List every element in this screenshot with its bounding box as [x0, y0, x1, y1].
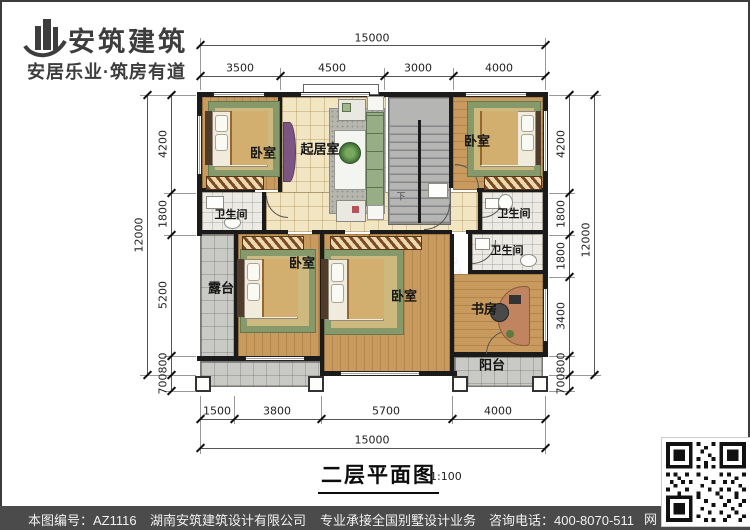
room-label-bedroom-bl: 卧室 [289, 253, 315, 272]
dimension-line [594, 95, 595, 375]
extension-line [280, 68, 281, 90]
sofa [366, 112, 384, 206]
dim-bottom-seg: 4000 [484, 405, 512, 418]
wardrobe [330, 236, 422, 250]
dimension-line [200, 419, 545, 420]
dim-left-seg: 800 [157, 353, 170, 374]
dim-top-seg: 4000 [485, 62, 513, 75]
dim-right-seg: 800 [555, 353, 568, 374]
side-table [367, 96, 384, 111]
dim-bottom-seg: 1500 [203, 405, 231, 418]
footer-phone: 咨询电话：400-8070-511 [489, 510, 634, 529]
side-table [367, 205, 384, 220]
room-label-bedroom-bc: 卧室 [391, 286, 417, 305]
extension-line [384, 68, 385, 90]
bed-headboard [205, 111, 212, 165]
dim-right-seg: 700 [555, 374, 568, 395]
dim-right-seg: 4200 [555, 130, 568, 158]
room-label-living: 起居室 [300, 139, 339, 158]
stairs-down-label: 下 [396, 190, 405, 203]
sofa-cushion [352, 206, 359, 213]
footer-company: 湖南安筑建筑设计有限公司 [150, 510, 306, 529]
room-label-bedroom-tr: 卧室 [464, 131, 490, 150]
extension-line [549, 277, 575, 278]
dim-left-seg: 700 [157, 374, 170, 395]
qr-code-pattern [666, 442, 746, 522]
drawing-title: 二层平面图 [318, 459, 439, 494]
stair-steps-left [390, 122, 418, 223]
footer-service: 专业承接全国别墅设计业务 [320, 510, 476, 529]
dimension-line [200, 45, 545, 46]
stair-rail [418, 120, 421, 223]
post [452, 376, 468, 392]
wall [449, 97, 453, 188]
window [213, 92, 265, 97]
window [197, 115, 202, 175]
post [195, 376, 211, 392]
window [543, 110, 548, 172]
post [308, 376, 324, 392]
dim-top-total: 15000 [355, 32, 390, 45]
pillow [521, 134, 534, 151]
dim-bottom-total: 15000 [355, 434, 390, 447]
wardrobe [206, 176, 264, 190]
pillow [331, 284, 344, 303]
dim-right-seg: 3400 [555, 302, 568, 330]
dimension-line [200, 448, 545, 449]
wall [312, 230, 345, 234]
console-table [283, 122, 296, 182]
wall [370, 230, 452, 234]
footer-web-char: 网 [644, 509, 657, 528]
company-logo-icon [22, 14, 68, 60]
sink [475, 238, 490, 250]
pillow [215, 134, 228, 151]
washbasin [428, 183, 448, 198]
window [543, 288, 548, 342]
dimension-line [200, 76, 545, 77]
company-tagline: 安居乐业·筑房有道 [27, 58, 186, 84]
armchair [336, 200, 366, 222]
dim-bottom-seg: 3800 [263, 405, 291, 418]
room-label-terrace: 露台 [208, 278, 234, 297]
wall [197, 230, 288, 234]
window [245, 356, 305, 361]
pillow [215, 115, 228, 132]
room-label-bedroom-tl: 卧室 [250, 143, 276, 162]
wall [472, 270, 548, 274]
window [465, 92, 527, 97]
extension-line [549, 193, 575, 194]
floor-terrace-strip [200, 361, 322, 387]
pillow [247, 263, 260, 281]
window [300, 92, 370, 97]
dim-left-seg: 4200 [157, 130, 170, 158]
drawing-scale: 1:100 [430, 470, 462, 483]
dim-right-total: 12000 [580, 223, 593, 258]
dimension-line [569, 95, 570, 391]
qr-code [662, 438, 750, 526]
bed-headboard [321, 259, 328, 319]
extension-line [549, 235, 575, 236]
company-name: 安筑建筑 [68, 20, 188, 59]
dim-right-seg: 1800 [555, 242, 568, 270]
window [340, 371, 420, 376]
drawing-number: 本图编号：AZ1116 [28, 510, 137, 529]
post [532, 376, 548, 392]
room-label-study: 书房 [471, 299, 497, 318]
plant [339, 142, 361, 164]
room-label-balcony: 阳台 [479, 355, 505, 374]
wardrobe [484, 176, 542, 190]
room-label-bath-r2: 卫生间 [491, 242, 524, 258]
dim-top-seg: 3000 [404, 62, 432, 75]
plant [506, 330, 514, 338]
pillow [331, 263, 344, 282]
wall [466, 230, 548, 234]
pillow [521, 115, 534, 132]
dim-bottom-seg: 5700 [372, 405, 400, 418]
dimension-line [147, 95, 148, 375]
sofa-cushion [342, 103, 351, 112]
dim-top-seg: 4500 [318, 62, 346, 75]
pillow [247, 283, 260, 301]
dim-top-seg: 3500 [226, 62, 254, 75]
bed-headboard [237, 259, 244, 317]
computer [509, 295, 521, 304]
room-label-bath-r1: 卫生间 [498, 205, 531, 221]
dim-right-seg: 1800 [555, 200, 568, 228]
dim-left-seg: 1800 [157, 200, 170, 228]
dimension-line [171, 95, 172, 391]
dim-left-total: 12000 [133, 218, 146, 253]
bed-blanket [347, 259, 384, 319]
extension-line [453, 68, 454, 90]
floor-plan-sheet: 安筑建筑 安居乐业·筑房有道 hnazjz.com hnazjz.com 下 [0, 0, 750, 530]
wardrobe [242, 236, 304, 250]
dim-left-seg: 5200 [157, 281, 170, 309]
room-label-bath-l: 卫生间 [215, 206, 248, 222]
